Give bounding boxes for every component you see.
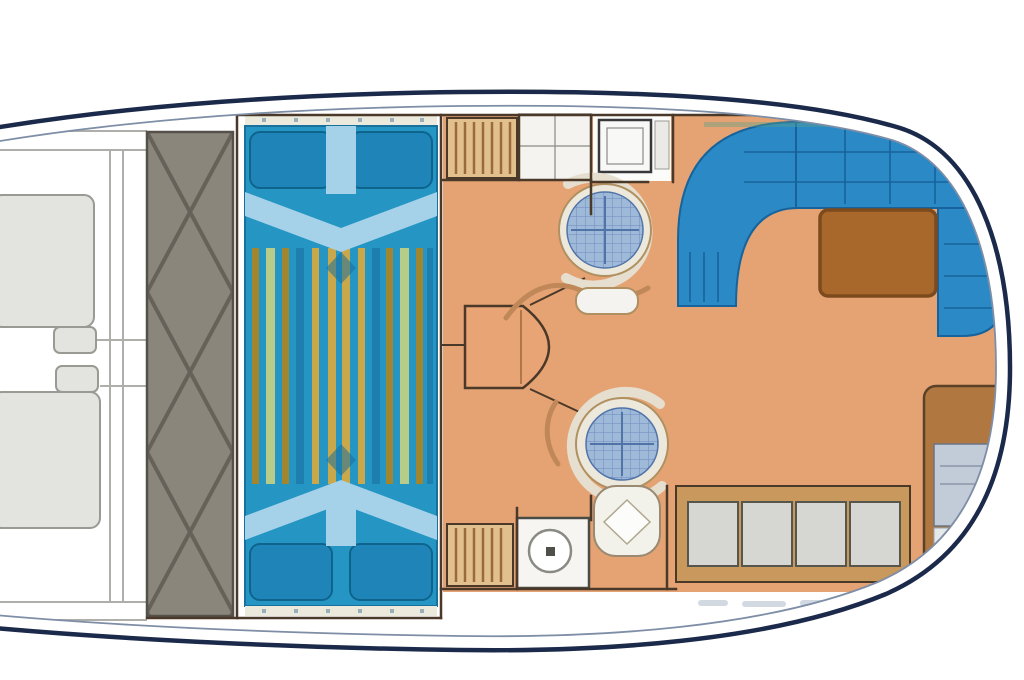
shower-cabinet [655, 121, 669, 169]
upper-cabinet [519, 114, 591, 180]
shower-room [593, 115, 671, 181]
chair-seat-forward [576, 288, 638, 314]
bed-head-trim [245, 116, 437, 126]
yacht-floor-plan [0, 0, 1024, 680]
floor-plan-canvas [0, 0, 1024, 680]
double-bed [245, 116, 437, 616]
aft-sideboard [676, 486, 910, 582]
bed-foot-trim [245, 606, 437, 616]
side-deck-tread-strip [147, 132, 233, 616]
top-deck-band [0, 0, 1024, 114]
bow-hatch-aft [0, 392, 100, 528]
bow-hatch-forward-tab [54, 327, 96, 353]
hull-interior [0, 0, 1024, 680]
bow-hatch-aft-tab [56, 366, 98, 392]
bow-hatch-forward [0, 195, 94, 327]
sofa-top-shadow [704, 122, 1000, 127]
burner-knob [546, 547, 555, 556]
louvered-wardrobe [447, 118, 517, 178]
companionway-stairs [924, 386, 1008, 578]
coffee-table [820, 210, 936, 296]
